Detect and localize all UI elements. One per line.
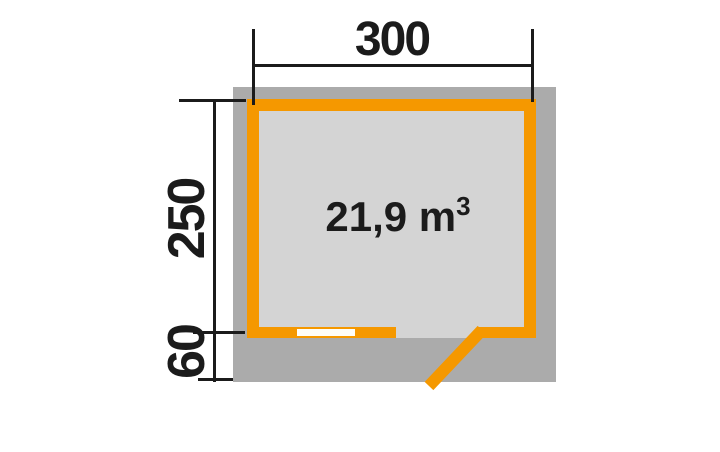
depth-tick-top [179,99,246,102]
width-dimension-label: 300 [292,16,492,64]
window-marker-icon [297,329,355,336]
width-extension-line-right [531,29,534,102]
door-opening [396,327,477,338]
width-extension-line-left [252,29,255,105]
area-label: 21,9 m3 [248,196,548,238]
area-exponent: 3 [456,191,470,221]
area-value: 21,9 m [325,193,456,240]
overhang-dimension-label: 60 [161,252,213,452]
floor-plan-diagram: 300 250 60 21,9 m3 [0,0,720,405]
